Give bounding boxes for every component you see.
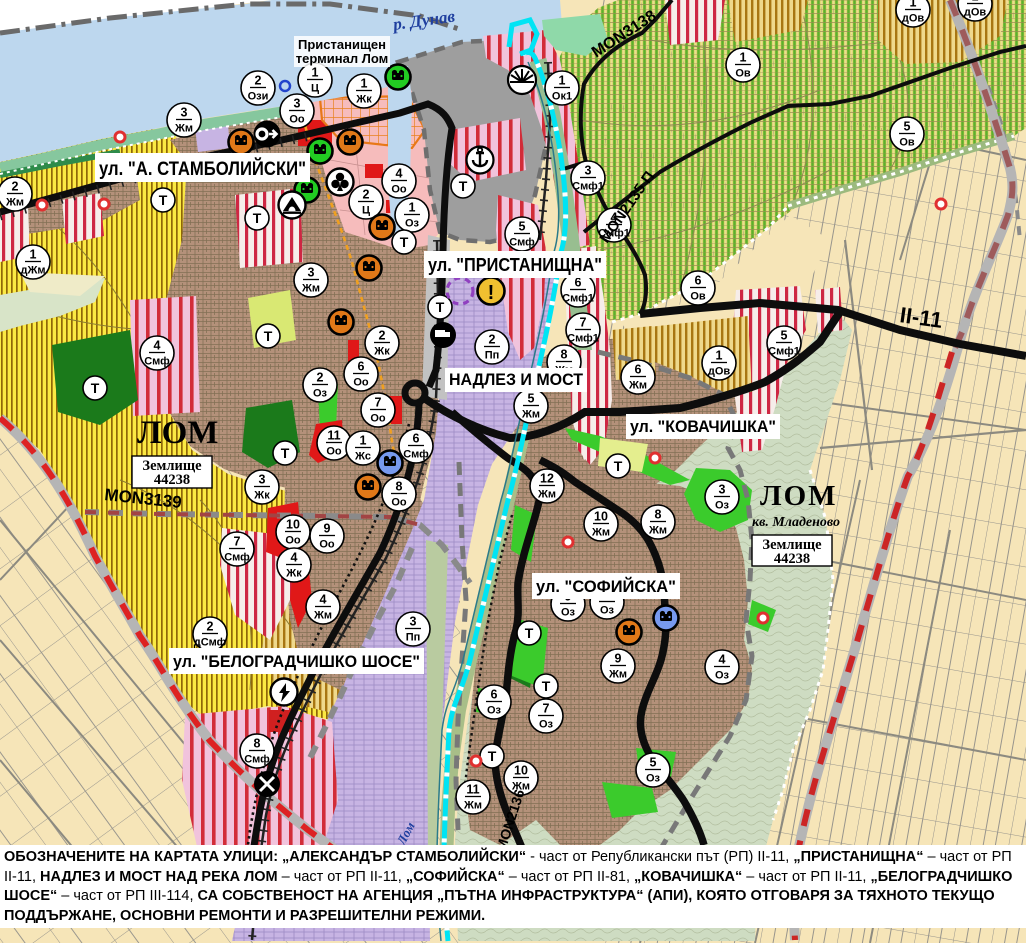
svg-text:Оо: Оо	[326, 446, 342, 458]
svg-text:дСмф: дСмф	[194, 637, 227, 649]
svg-text:3: 3	[294, 97, 301, 111]
svg-text:ЛОМ: ЛОМ	[137, 415, 218, 451]
svg-text:1: 1	[30, 248, 37, 262]
svg-text:Жс: Жс	[354, 451, 371, 463]
svg-text:ул. "ПРИСТАНИЩНА": ул. "ПРИСТАНИЩНА"	[428, 255, 602, 275]
svg-text:5: 5	[528, 392, 535, 406]
svg-text:ул. "СОФИЙСКА": ул. "СОФИЙСКА"	[536, 577, 676, 596]
svg-text:!: !	[488, 282, 495, 304]
svg-text:Оз: Оз	[313, 388, 328, 400]
svg-text:Оо: Оо	[353, 377, 369, 389]
svg-text:4: 4	[396, 167, 403, 181]
svg-text:6: 6	[635, 363, 642, 377]
svg-text:Жм: Жм	[648, 525, 667, 537]
svg-text:Оз: Оз	[715, 500, 730, 512]
svg-text:Жм: Жм	[537, 489, 556, 501]
svg-text:6: 6	[413, 432, 420, 446]
svg-text:Смф: Смф	[244, 754, 270, 766]
svg-text:4: 4	[719, 653, 726, 667]
svg-text:Жм: Жм	[608, 669, 627, 681]
svg-text:10: 10	[514, 764, 528, 778]
svg-text:1: 1	[559, 74, 566, 88]
svg-text:2: 2	[12, 180, 19, 194]
svg-text:6: 6	[358, 360, 365, 374]
svg-text:3: 3	[181, 106, 188, 120]
svg-text:дОв: дОв	[708, 366, 731, 378]
svg-text:ул. "А. СТАМБОЛИЙСКИ": ул. "А. СТАМБОЛИЙСКИ"	[99, 158, 306, 180]
svg-text:Т: Т	[525, 625, 534, 641]
svg-text:Т: Т	[159, 192, 168, 208]
svg-text:Пп: Пп	[406, 632, 421, 644]
svg-text:Жм: Жм	[174, 123, 193, 135]
svg-text:Смф1: Смф1	[567, 333, 599, 345]
svg-text:Жк: Жк	[285, 568, 302, 580]
svg-text:ул. "БЕЛОГРАДЧИШКО ШОСЕ": ул. "БЕЛОГРАДЧИШКО ШОСЕ"	[173, 652, 420, 671]
svg-text:Т: Т	[281, 445, 290, 461]
svg-text:Смф: Смф	[144, 356, 170, 368]
svg-text:Смф1: Смф1	[562, 293, 594, 305]
svg-text:Оз: Оз	[487, 705, 502, 717]
svg-text:Оз: Оз	[561, 607, 576, 619]
svg-text:Оо: Оо	[370, 413, 386, 425]
svg-text:Т: Т	[614, 458, 623, 474]
svg-text:5: 5	[650, 756, 657, 770]
svg-text:2: 2	[255, 74, 262, 88]
svg-text:44238: 44238	[154, 472, 190, 488]
svg-text:Т: Т	[264, 328, 273, 344]
svg-text:Смф: Смф	[403, 449, 429, 461]
svg-text:Оо: Оо	[285, 535, 301, 547]
svg-text:Жм: Жм	[521, 409, 540, 421]
svg-text:4: 4	[291, 551, 298, 565]
svg-text:10: 10	[594, 510, 608, 524]
svg-text:Т: Т	[436, 299, 445, 315]
svg-text:Смф: Смф	[509, 237, 535, 249]
svg-text:1: 1	[360, 434, 367, 448]
svg-text:Ози: Ози	[248, 91, 269, 103]
svg-text:Жм: Жм	[5, 197, 24, 209]
svg-text:8: 8	[396, 480, 403, 494]
svg-text:ЛОМ: ЛОМ	[760, 480, 838, 512]
svg-text:1: 1	[740, 51, 747, 65]
svg-text:5: 5	[904, 120, 911, 134]
svg-text:Жк: Жк	[355, 94, 372, 106]
svg-text:8: 8	[561, 348, 568, 362]
svg-text:1: 1	[910, 0, 917, 10]
svg-text:НАДЛЕЗ И МОСТ: НАДЛЕЗ И МОСТ	[449, 370, 584, 389]
svg-text:Оз: Оз	[646, 773, 661, 785]
svg-text:4: 4	[154, 339, 161, 353]
svg-text:Оз: Оз	[539, 719, 554, 731]
svg-text:3: 3	[308, 266, 315, 280]
svg-text:7: 7	[234, 535, 241, 549]
svg-text:Т: Т	[400, 234, 409, 250]
svg-text:11: 11	[466, 783, 479, 797]
svg-text:Ов: Ов	[899, 137, 915, 149]
svg-text:Ц: Ц	[362, 205, 370, 217]
svg-text:9: 9	[324, 522, 331, 536]
svg-text:кв. Младеново: кв. Младеново	[752, 515, 840, 530]
svg-text:Т: Т	[253, 210, 262, 226]
svg-text:10: 10	[286, 518, 300, 532]
svg-text:3: 3	[259, 473, 266, 487]
svg-text:1: 1	[361, 77, 368, 91]
svg-text:3: 3	[585, 164, 592, 178]
svg-text:1: 1	[312, 66, 319, 80]
svg-text:Оз: Оз	[600, 605, 615, 617]
svg-text:Жм: Жм	[591, 527, 610, 539]
svg-text:Смф: Смф	[224, 552, 250, 564]
svg-text:1: 1	[716, 349, 723, 363]
svg-text:Т: Т	[91, 380, 100, 396]
svg-text:2: 2	[363, 188, 370, 202]
svg-text:Оо: Оо	[391, 497, 407, 509]
svg-text:Жм: Жм	[628, 380, 647, 392]
svg-text:Оз: Оз	[715, 670, 730, 682]
svg-text:8: 8	[655, 508, 662, 522]
svg-text:12: 12	[540, 472, 554, 486]
svg-text:2: 2	[379, 329, 386, 343]
svg-text:3: 3	[719, 483, 726, 497]
svg-text:Ц: Ц	[311, 83, 319, 95]
svg-text:Оо: Оо	[319, 539, 335, 551]
svg-text:Т: Т	[459, 178, 468, 194]
svg-text:Оз: Оз	[405, 218, 420, 230]
svg-text:11: 11	[327, 429, 340, 443]
svg-text:Жм: Жм	[463, 800, 482, 812]
svg-text:7: 7	[375, 396, 382, 410]
svg-text:Пп: Пп	[485, 350, 500, 362]
svg-text:Жм: Жм	[313, 610, 332, 622]
svg-text:9: 9	[615, 652, 622, 666]
svg-text:дОв: дОв	[964, 7, 987, 19]
svg-text:Жм: Жм	[301, 283, 320, 295]
svg-text:5: 5	[781, 329, 788, 343]
svg-text:3: 3	[410, 615, 417, 629]
svg-text:2: 2	[317, 371, 324, 385]
svg-text:ул. "КОВАЧИШКА": ул. "КОВАЧИШКА"	[630, 417, 776, 436]
svg-text:дОв: дОв	[902, 13, 925, 25]
svg-text:5: 5	[519, 220, 526, 234]
svg-text:6: 6	[695, 274, 702, 288]
svg-text:2: 2	[489, 333, 496, 347]
svg-text:Ов: Ов	[690, 291, 706, 303]
svg-text:2: 2	[207, 620, 214, 634]
svg-text:44238: 44238	[774, 551, 810, 567]
svg-text:Смф1: Смф1	[572, 181, 604, 193]
svg-text:Пристанищен: Пристанищен	[298, 37, 386, 52]
svg-text:Жк: Жк	[253, 490, 270, 502]
svg-text:Оо: Оо	[391, 184, 407, 196]
svg-text:Оо: Оо	[289, 114, 305, 126]
svg-text:терминал Лом: терминал Лом	[296, 51, 388, 66]
svg-text:4: 4	[320, 593, 327, 607]
svg-text:Ок1: Ок1	[552, 91, 572, 103]
svg-text:Т: Т	[488, 748, 497, 764]
svg-text:Т: Т	[542, 678, 551, 694]
svg-text:6: 6	[491, 688, 498, 702]
svg-text:дЖм: дЖм	[20, 265, 45, 277]
svg-text:7: 7	[580, 316, 587, 330]
svg-text:7: 7	[543, 702, 550, 716]
svg-text:Смф1: Смф1	[768, 346, 800, 358]
svg-text:Жк: Жк	[373, 346, 390, 358]
svg-text:8: 8	[254, 737, 261, 751]
svg-text:1: 1	[409, 201, 416, 215]
svg-text:Ов: Ов	[735, 68, 751, 80]
